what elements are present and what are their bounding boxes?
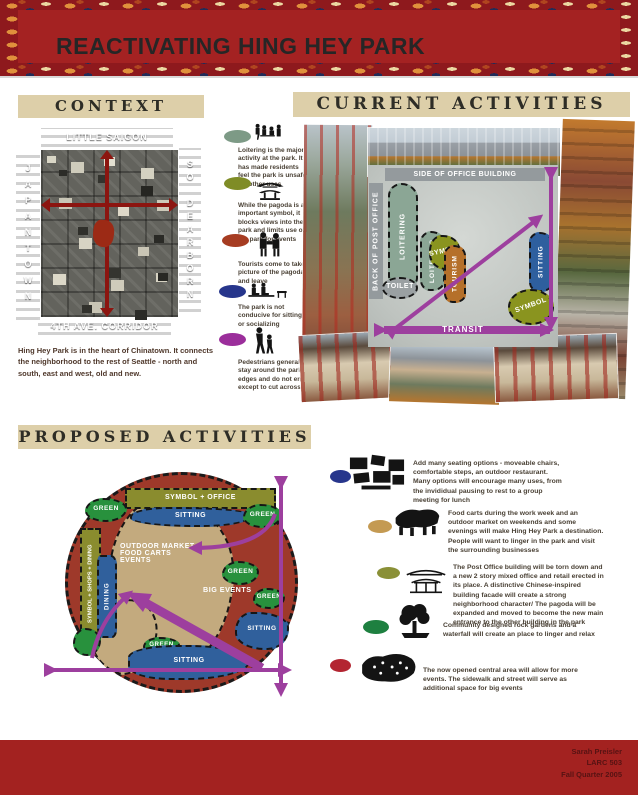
park-site-highlight (91, 219, 116, 249)
map-label-little-saigon: LITTLE SAIGON (41, 128, 173, 147)
header-title-panel: REACTIVATING HING HEY PARK (18, 10, 620, 63)
arrowhead-south (100, 308, 114, 317)
aerial-map (41, 150, 178, 317)
bullet-rock-garden (363, 620, 389, 634)
map-label-4th-ave: 4TH AVE. CORRIDOR (38, 318, 171, 335)
food-carts-icon (392, 503, 442, 539)
context-caption: Hing Hey Park is in the heart of Chinato… (18, 345, 214, 379)
bullet-pedestrians (219, 333, 246, 346)
map-label-so-dearborn: SO DEARBORN (179, 148, 201, 312)
poster-page: REACTIVATING HING HEY PARK CONTEXT LITTL… (0, 0, 638, 800)
walking-people-icon (251, 326, 276, 356)
arrowhead-north (100, 150, 114, 159)
tourist-people-icon (253, 231, 287, 258)
proposed-item-text: The now opened central area will allow f… (423, 666, 581, 694)
proposed-section-title: PROPOSED ACTIVITIES (18, 425, 311, 449)
bullet-new-building (377, 567, 400, 579)
seating-options-icon (348, 453, 406, 493)
rock-garden-tree-icon (392, 603, 439, 639)
current-site-plan: SIDE OF OFFICE BUILDING BACK OF POST OFF… (368, 165, 558, 347)
proposed-item-text: Add many seating options - moveable chai… (413, 459, 565, 505)
bullet-tourists (222, 234, 249, 247)
street-photo-bottom-center (389, 343, 501, 405)
east-west-arrow (49, 203, 170, 207)
pagoda-icon (247, 179, 293, 200)
course-number: LARC 503 (561, 757, 622, 768)
bullet-loitering (224, 130, 251, 143)
sitting-people-icon (247, 282, 288, 300)
loitering-people-icon (251, 121, 284, 144)
transit-arrow-label: TRANSIT (423, 325, 503, 334)
aerial-buildings-light (47, 156, 56, 163)
map-label-japantown: JAPANTOWN (16, 150, 40, 320)
bullet-food-carts (368, 520, 392, 533)
new-building-icon (402, 565, 450, 594)
context-section-title: CONTEXT (18, 95, 204, 118)
header-band: REACTIVATING HING HEY PARK (0, 0, 638, 78)
aerial-buildings-dark (59, 170, 67, 176)
current-collage: SIDE OF OFFICE BUILDING BACK OF POST OFF… (295, 120, 632, 402)
arrowhead-east (169, 198, 178, 212)
proposed-item-text: Community designed rock gardens and a wa… (443, 621, 598, 639)
current-flow-arrows (368, 165, 558, 347)
proposed-diagram: SYMBOL + OFFICE SITTING GREEN GREEN SYMB… (40, 458, 312, 710)
poster-title: REACTIVATING HING HEY PARK (56, 20, 616, 73)
credits: Sarah Preisler LARC 503 Fall Quarter 200… (561, 746, 622, 780)
proposed-item-text: Food carts during the work week and an o… (448, 509, 605, 555)
footer-band: Sarah Preisler LARC 503 Fall Quarter 200… (0, 740, 638, 795)
term: Fall Quarter 2005 (561, 769, 622, 780)
proposed-flow-arrows (40, 458, 312, 710)
author-name: Sarah Preisler (561, 746, 622, 757)
current-section-title: CURRENT ACTIVITIES (293, 92, 630, 117)
bullet-big-events (330, 659, 351, 672)
bullet-sitting (219, 285, 246, 298)
arrowhead-west (41, 198, 50, 212)
proposed-item-text: The Post Office building will be torn do… (453, 563, 606, 627)
big-events-crowd-icon (358, 648, 420, 688)
